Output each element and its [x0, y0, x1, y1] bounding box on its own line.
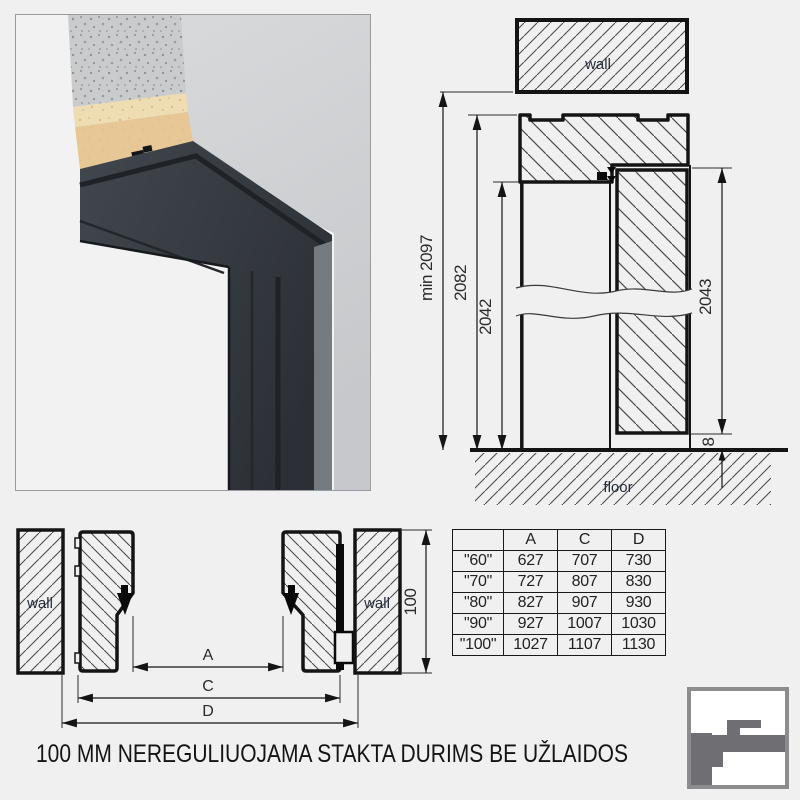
size-cell: "90"	[453, 614, 504, 635]
c-cell: 807	[558, 572, 612, 593]
svg-text:A: A	[203, 647, 214, 664]
d-cell: 1030	[612, 614, 666, 635]
floor-label: floor	[603, 479, 632, 496]
svg-text:2043: 2043	[696, 279, 715, 315]
size-cell: "70"	[453, 572, 504, 593]
c-cell: 907	[558, 593, 612, 614]
svg-text:8: 8	[699, 437, 718, 446]
svg-text:2082: 2082	[451, 265, 470, 301]
leg-light-edge	[314, 241, 332, 490]
dim-frame-height: 2082	[451, 115, 517, 450]
table-header-row: A C D	[453, 530, 666, 551]
catalog-page: { "page": { "caption": "100 MM NEREGULIU…	[0, 0, 800, 800]
frame-photo-3d	[15, 14, 371, 491]
wall-label: wall	[584, 56, 611, 73]
horizontal-section-drawing: wall wall 100 A C	[0, 520, 450, 760]
left-wall-label: wall	[26, 595, 53, 612]
dim-clear-height: 2042	[476, 182, 519, 450]
dim-frame-depth: 100	[401, 530, 432, 673]
frame-photo-art	[16, 15, 370, 490]
logo-left-block	[691, 733, 712, 785]
logo-understep	[712, 752, 723, 767]
svg-text:D: D	[202, 703, 214, 720]
dim-a: A	[133, 616, 283, 672]
table-row: "60" 627 707 730	[453, 551, 666, 572]
d-cell: 930	[612, 593, 666, 614]
c-cell: 1007	[558, 614, 612, 635]
right-wall-label: wall	[363, 595, 390, 612]
c-cell: 1107	[558, 635, 612, 656]
size-cell: "60"	[453, 551, 504, 572]
page-title: 100 MM NEREGULIUOJAMA STAKTA DURIMS BE U…	[36, 740, 700, 769]
d-cell: 730	[612, 551, 666, 572]
table-header-d: D	[612, 530, 666, 551]
a-cell: 827	[504, 593, 558, 614]
size-cell: "80"	[453, 593, 504, 614]
a-cell: 927	[504, 614, 558, 635]
logo-step	[727, 720, 740, 736]
table-header-a: A	[504, 530, 558, 551]
svg-text:2042: 2042	[476, 299, 495, 335]
vertical-section-drawing: wall floor min 2097 2082 2042	[420, 10, 800, 510]
table-row: "90" 927 1007 1030	[453, 614, 666, 635]
svg-text:C: C	[202, 678, 214, 695]
dim-c: C	[78, 675, 340, 703]
table-header-c: C	[558, 530, 612, 551]
c-cell: 707	[558, 551, 612, 572]
table-row: "80" 827 907 930	[453, 593, 666, 614]
table-header-blank	[453, 530, 504, 551]
table-row: "100" 1027 1107 1130	[453, 635, 666, 656]
d-cell: 830	[612, 572, 666, 593]
a-cell: 1027	[504, 635, 558, 656]
svg-text:min 2097: min 2097	[420, 235, 436, 301]
dim-leaf-height: 2043	[690, 168, 732, 434]
size-cell: "100"	[453, 635, 504, 656]
svg-text:100: 100	[401, 589, 420, 616]
logo-arm	[740, 720, 761, 728]
a-cell: 727	[504, 572, 558, 593]
latch-box	[335, 632, 353, 663]
table-row: "70" 727 807 830	[453, 572, 666, 593]
manufacturer-logo-icon	[687, 687, 789, 789]
a-cell: 627	[504, 551, 558, 572]
size-table: A C D "60" 627 707 730 "70" 727 807 830 …	[452, 529, 666, 656]
logo-bar	[712, 735, 785, 752]
d-cell: 1130	[612, 635, 666, 656]
